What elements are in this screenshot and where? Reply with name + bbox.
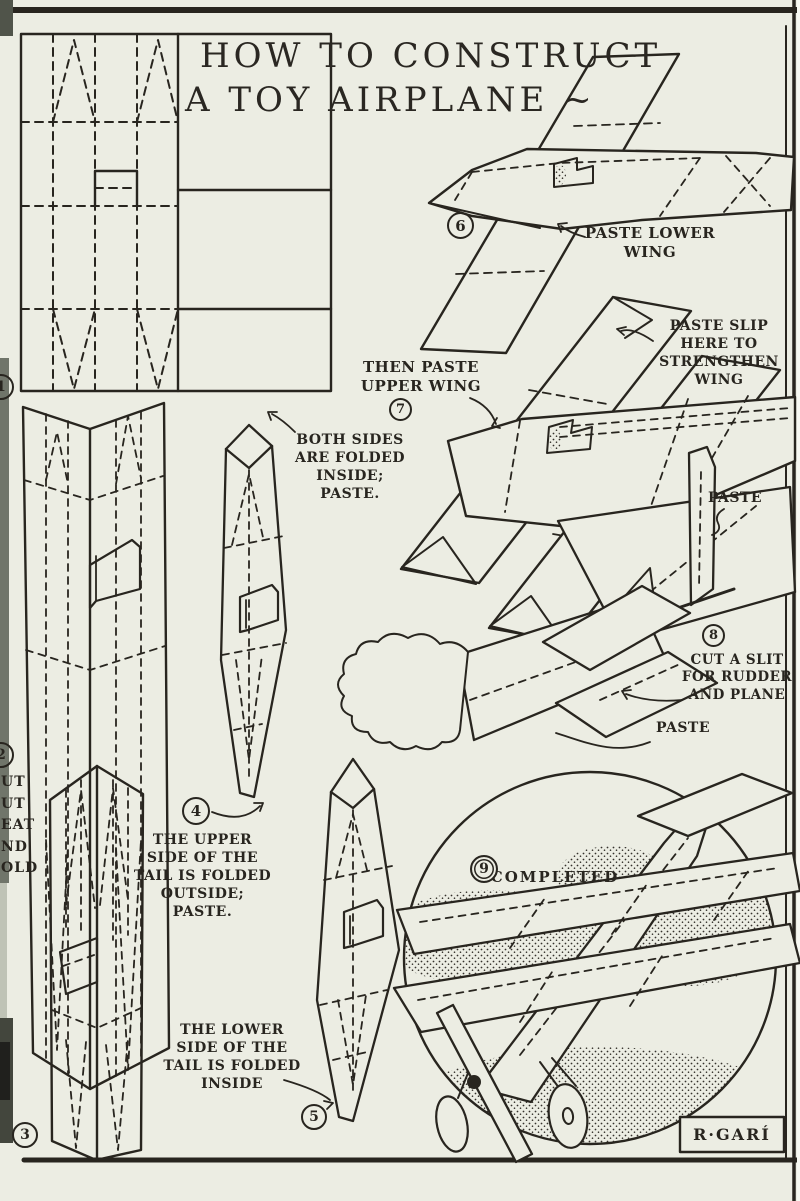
label-completed: COMPLETED	[490, 868, 620, 887]
label-cut-a-slit: CUT A SLIT FOR RUDDER AND PLANE	[676, 652, 798, 704]
figure-folded-box-step3	[50, 766, 143, 1160]
artist-signature: R·GARÍ	[682, 1119, 782, 1150]
page-title-line1: HOW TO CONSTRUCT	[200, 36, 600, 76]
page-title-line2: A TOY AIRPLANE ~	[185, 80, 585, 120]
diagram-art	[0, 0, 800, 1201]
step-number-7: 7	[389, 398, 412, 421]
label-upper-side: THE UPPER SIDE OF THE TAIL IS FOLDED OUT…	[130, 832, 275, 922]
label-paste-lower-wing: PASTE LOWER WING	[565, 224, 735, 262]
figure-fuselage-step4	[212, 425, 286, 817]
label-paste-tail: PASTE	[648, 720, 718, 738]
label-paste-slip: PASTE SLIP HERE TO STRENGTHEN WING	[640, 318, 798, 390]
step-number-4: 4	[182, 797, 210, 825]
label-then-paste-upper: THEN PASTE UPPER WING	[352, 358, 490, 396]
label-paste-fin: PASTE	[700, 490, 770, 508]
step-number-9: 9	[470, 855, 498, 883]
step-number-6: 6	[447, 212, 474, 239]
left-margin-cut-text: UT UT EAT ND OLD	[1, 772, 38, 880]
step-number-3: 3	[12, 1122, 38, 1148]
step-number-5: 5	[301, 1104, 327, 1130]
label-lower-side: THE LOWER SIDE OF THE TAIL IS FOLDED INS…	[156, 1022, 308, 1094]
step-number-8: 8	[702, 624, 725, 647]
label-both-sides: BOTH SIDES ARE FOLDED INSIDE; PASTE.	[290, 432, 410, 504]
arrow-both-sides	[272, 414, 295, 432]
scanned-instruction-page: HOW TO CONSTRUCT A TOY AIRPLANE ~ PASTE …	[0, 0, 800, 1201]
